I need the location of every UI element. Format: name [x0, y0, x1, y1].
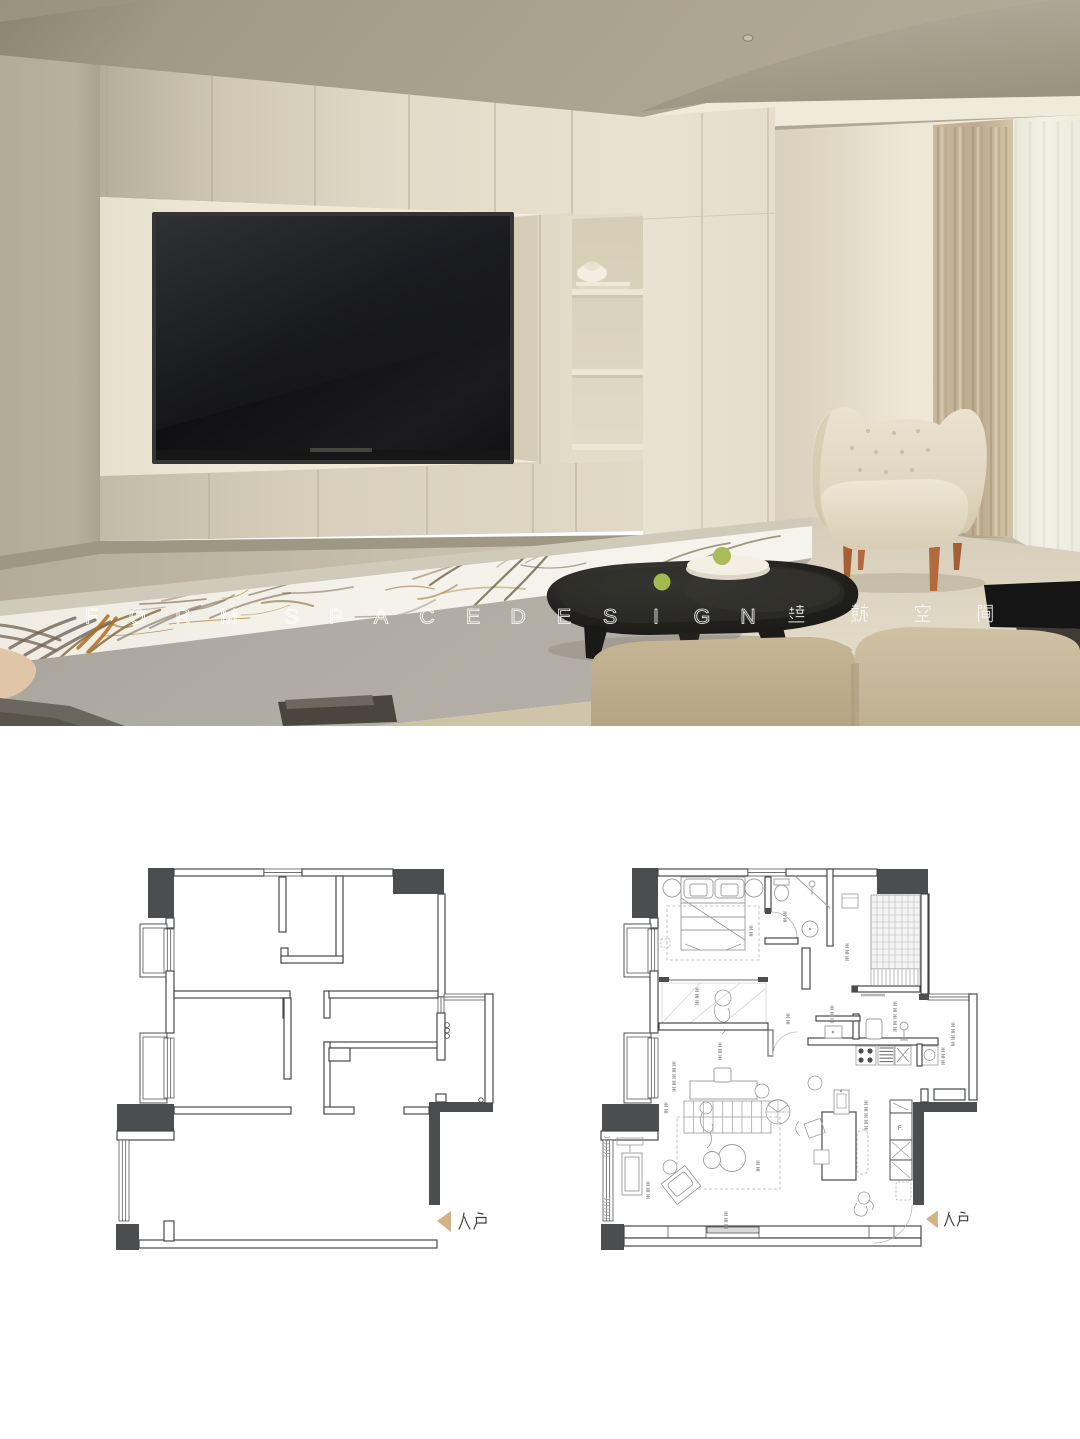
svg-text:A: A	[374, 605, 389, 629]
svg-text:G: G	[694, 605, 711, 629]
svg-text:S: S	[603, 605, 617, 629]
svg-text:R: R	[175, 605, 191, 629]
svg-text:N: N	[740, 605, 756, 629]
svg-text:D: D	[510, 605, 526, 629]
svg-text:C: C	[419, 605, 435, 629]
svg-text:F: F	[85, 605, 98, 629]
svg-text:E: E	[557, 605, 571, 629]
svg-text:I: I	[653, 605, 659, 629]
svg-text:O: O	[129, 605, 146, 629]
svg-text:F.: F.	[898, 1126, 903, 1132]
svg-text:S: S	[284, 605, 298, 629]
svg-text:P: P	[329, 605, 343, 629]
svg-text:E: E	[466, 605, 480, 629]
svg-text:M: M	[220, 605, 238, 629]
